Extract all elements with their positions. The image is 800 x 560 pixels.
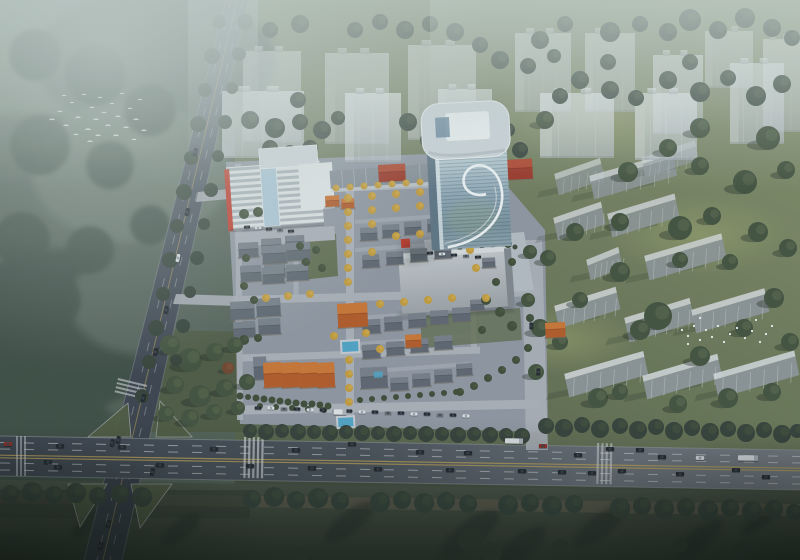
scene-canvas bbox=[0, 0, 800, 560]
atmosphere bbox=[0, 0, 800, 560]
aerial-architectural-rendering bbox=[0, 0, 800, 560]
